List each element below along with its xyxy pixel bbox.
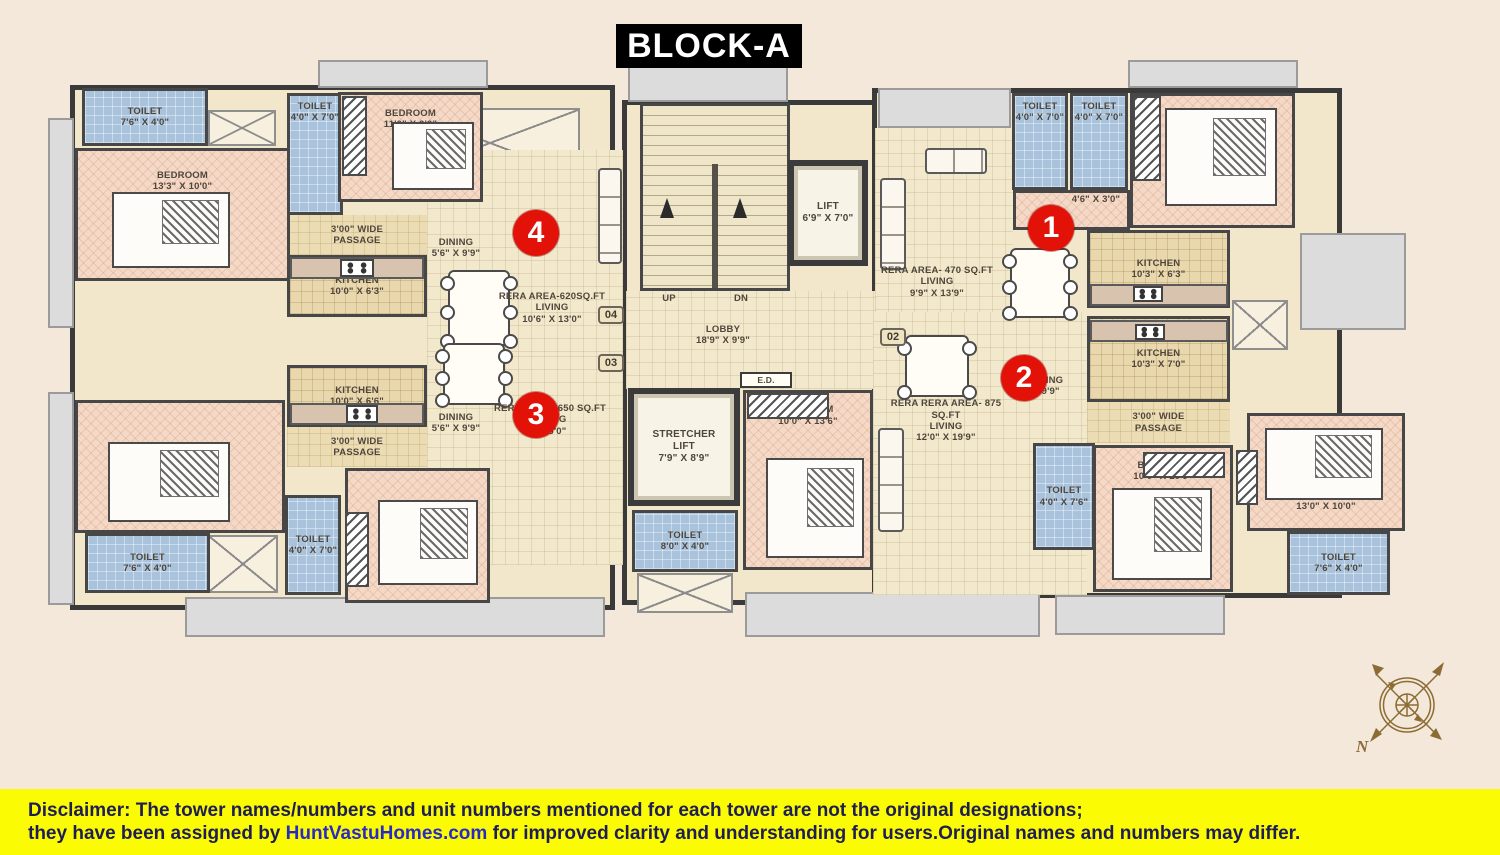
unit1-living-label: RERA AREA- 470 SQ.FTLIVING9'9" X 13'9" bbox=[878, 258, 996, 306]
unit4-dining-label-label: DINING5'6" X 9'9" bbox=[418, 230, 494, 266]
unit-marker-4: 4 bbox=[513, 210, 559, 256]
bed-icon bbox=[112, 192, 230, 268]
common-toilet: TOILET8'0" X 4'0" bbox=[632, 510, 738, 572]
unit1-living-label-label: RERA AREA- 470 SQ.FTLIVING9'9" X 13'9" bbox=[878, 258, 996, 306]
uparrow-icon bbox=[660, 198, 674, 218]
chair-icon bbox=[1063, 306, 1078, 321]
chair-icon bbox=[1002, 280, 1017, 295]
unit-tag-03: 03 bbox=[598, 354, 624, 372]
unit4-toilet-1-label: TOILET7'6" X 4'0" bbox=[85, 91, 205, 143]
unit4-toilet-1: TOILET7'6" X 4'0" bbox=[82, 88, 208, 146]
disclaimer-site-name: HuntVastuHomes.com bbox=[286, 823, 488, 844]
void-box-right bbox=[1232, 300, 1288, 350]
unit3-dining-label-label: DINING5'6" X 9'9" bbox=[418, 405, 494, 441]
unit2-living-label: RERA RERA AREA- 875 SQ.FTLIVING12'0" X 1… bbox=[876, 396, 1016, 446]
stairs-dn-label-label: DN bbox=[724, 292, 758, 306]
unit4-toilet-2: TOILET4'0" X 7'0" bbox=[287, 93, 343, 215]
disclaimer-line1: Disclaimer: The tower names/numbers and … bbox=[28, 799, 1500, 822]
unit4-dining-label: DINING5'6" X 9'9" bbox=[418, 230, 494, 266]
wardrobe-icon bbox=[1236, 450, 1258, 505]
block-title: BLOCK-A bbox=[616, 24, 802, 68]
unit-tag-02: 02 bbox=[880, 328, 906, 346]
lift: LIFT6'9" X 7'0" bbox=[788, 160, 868, 266]
lobby-label: LOBBY18'9" X 9'9" bbox=[688, 318, 758, 352]
lobby-label-label: LOBBY18'9" X 9'9" bbox=[688, 318, 758, 352]
stretcher-lift-label: STRETCHERLIFT7'9" X 8'9" bbox=[634, 394, 734, 500]
common-toilet-label: TOILET8'0" X 4'0" bbox=[635, 513, 735, 569]
unit1-toilet-2-label: TOILET4'0" X 7'0" bbox=[1073, 96, 1125, 187]
unit4-toilet-2-label: TOILET4'0" X 7'0" bbox=[290, 96, 340, 212]
balcony-top-right bbox=[1128, 60, 1298, 88]
unit3-passage: 3'00" WIDEPASSAGE bbox=[287, 427, 427, 467]
unit-tag-04: 04 bbox=[598, 306, 624, 324]
balcony-top-left bbox=[318, 60, 488, 88]
lift-label: LIFT6'9" X 7'0" bbox=[794, 166, 862, 260]
unit-marker-1: 1 bbox=[1028, 205, 1074, 251]
wardrobe-icon bbox=[1133, 96, 1161, 181]
bed-icon bbox=[1112, 488, 1212, 580]
unit1-toilet-2: TOILET4'0" X 7'0" bbox=[1070, 93, 1128, 190]
wardrobe-icon bbox=[345, 512, 369, 587]
void-box-bottom-mid bbox=[637, 573, 733, 613]
bed-icon bbox=[1265, 428, 1383, 500]
chair-icon bbox=[1063, 280, 1078, 295]
staircase bbox=[640, 103, 790, 291]
compass-north-label: N bbox=[1355, 737, 1369, 756]
stairs-up-label-label: UP bbox=[652, 292, 686, 306]
sofa-icon bbox=[880, 178, 906, 270]
chair-icon bbox=[440, 305, 455, 320]
stove-icon bbox=[340, 259, 374, 277]
unit1-hall-label-label: 4'6" X 3'0" bbox=[1058, 192, 1134, 208]
compass-icon: N bbox=[1352, 652, 1452, 760]
chair-icon bbox=[1002, 254, 1017, 269]
chair-icon bbox=[503, 334, 518, 349]
wardrobe-icon bbox=[342, 96, 367, 176]
stove-icon bbox=[1135, 324, 1165, 340]
unit3-toilet-2-label: TOILET4'0" X 7'0" bbox=[288, 498, 338, 592]
stove-icon bbox=[346, 405, 378, 423]
balcony-unit1-top bbox=[878, 88, 1011, 128]
disclaimer-label: Disclaimer: bbox=[28, 800, 130, 821]
stairs-dn-label: DN bbox=[724, 292, 758, 306]
unit1-toilet-1: TOILET4'0" X 7'0" bbox=[1012, 93, 1068, 190]
chair-icon bbox=[435, 371, 450, 386]
unit1-hall-label: 4'6" X 3'0" bbox=[1058, 192, 1134, 208]
electrical-duct-label: E.D. bbox=[742, 374, 790, 386]
unit4-living-label-label: RERA AREA-620SQ.FTLIVING10'6" X 13'0" bbox=[492, 283, 612, 333]
stretcher-lift: STRETCHERLIFT7'9" X 8'9" bbox=[628, 388, 740, 506]
chair-icon bbox=[440, 276, 455, 291]
bed-icon bbox=[392, 122, 474, 190]
disclaimer-line2: they have been assigned by HuntVastuHome… bbox=[28, 822, 1500, 845]
balcony-bottom-left bbox=[185, 597, 605, 637]
wardrobe-icon bbox=[1143, 452, 1225, 478]
balcony-left-lower bbox=[48, 392, 74, 605]
floor-plan-page: BLOCK-A TOILET7'6" X 4'0"BEDROOM13'3" X … bbox=[0, 0, 1500, 855]
balcony-bottom-right bbox=[1055, 595, 1225, 635]
bed-icon bbox=[108, 442, 230, 522]
unit-marker-2: 2 bbox=[1001, 355, 1047, 401]
uparrow-icon bbox=[733, 198, 747, 218]
unit3-toilet-2: TOILET4'0" X 7'0" bbox=[285, 495, 341, 595]
bed-icon bbox=[1165, 108, 1277, 206]
unit2-living-label-label: RERA RERA AREA- 875 SQ.FTLIVING12'0" X 1… bbox=[876, 396, 1016, 446]
stairs-up-label: UP bbox=[652, 292, 686, 306]
table-icon bbox=[905, 335, 969, 397]
sofa-icon bbox=[598, 168, 622, 264]
bed-icon bbox=[766, 458, 864, 558]
unit3-toilet-1: TOILET7'6" X 4'0" bbox=[85, 533, 210, 593]
chair-icon bbox=[962, 341, 977, 356]
bed-icon bbox=[378, 500, 478, 585]
unit2-toilet-2-label: TOILET7'6" X 4'0" bbox=[1290, 534, 1387, 592]
chair-icon bbox=[498, 349, 513, 364]
balcony-left-upper bbox=[48, 118, 74, 328]
unit2-toilet-1-label: TOILET4'0" X 7'6" bbox=[1036, 446, 1092, 547]
floor-plan: TOILET7'6" X 4'0"BEDROOM13'3" X 10'0"TOI… bbox=[0, 0, 1500, 855]
chair-icon bbox=[435, 349, 450, 364]
sofa-icon bbox=[925, 148, 987, 174]
unit1-toilet-1-label: TOILET4'0" X 7'0" bbox=[1015, 96, 1065, 187]
balcony-bottom-center bbox=[745, 592, 1040, 637]
unit2-passage: 3'00" WIDEPASSAGE bbox=[1087, 402, 1230, 443]
unit4-living-label: RERA AREA-620SQ.FTLIVING10'6" X 13'0" bbox=[492, 283, 612, 333]
table-icon bbox=[1010, 248, 1070, 318]
void-box-top-left bbox=[208, 110, 276, 146]
balcony-right bbox=[1300, 233, 1406, 330]
unit4-passage: 3'00" WIDEPASSAGE bbox=[287, 215, 427, 255]
unit-marker-3: 3 bbox=[513, 392, 559, 438]
stove-icon bbox=[1133, 286, 1163, 302]
chair-icon bbox=[1063, 254, 1078, 269]
void-box-bottom-left bbox=[208, 535, 278, 593]
chair-icon bbox=[1002, 306, 1017, 321]
disclaimer-bar: Disclaimer: The tower names/numbers and … bbox=[0, 789, 1500, 855]
chair-icon bbox=[498, 371, 513, 386]
unit3-dining-label: DINING5'6" X 9'9" bbox=[418, 405, 494, 441]
unit2-passage-label: 3'00" WIDEPASSAGE bbox=[1087, 402, 1230, 443]
wardrobe-icon bbox=[747, 393, 829, 419]
unit2-toilet-1: TOILET4'0" X 7'6" bbox=[1033, 443, 1095, 550]
unit3-toilet-1-label: TOILET7'6" X 4'0" bbox=[88, 536, 207, 590]
unit3-passage-label: 3'00" WIDEPASSAGE bbox=[287, 427, 427, 467]
unit4-passage-label: 3'00" WIDEPASSAGE bbox=[287, 215, 427, 255]
unit2-toilet-2: TOILET7'6" X 4'0" bbox=[1287, 531, 1390, 595]
electrical-duct: E.D. bbox=[740, 372, 792, 388]
